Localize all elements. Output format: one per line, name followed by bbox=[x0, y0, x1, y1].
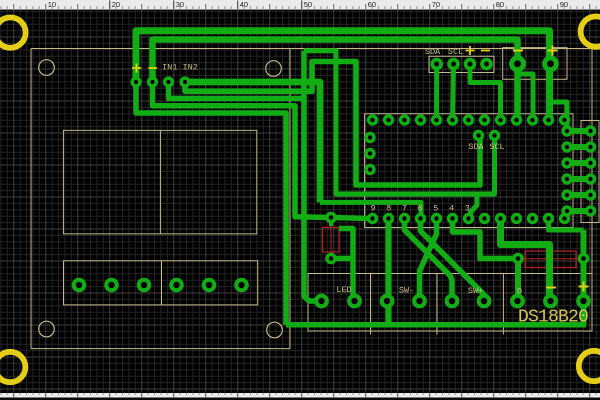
svg-text:DS18B20: DS18B20 bbox=[518, 308, 588, 328]
svg-text:7: 7 bbox=[402, 204, 407, 214]
svg-text:60: 60 bbox=[368, 0, 376, 9]
svg-text:20: 20 bbox=[112, 0, 120, 9]
svg-text:3: 3 bbox=[465, 204, 470, 214]
svg-text:SCL: SCL bbox=[489, 142, 504, 152]
svg-text:SDA: SDA bbox=[468, 142, 484, 152]
svg-text:8: 8 bbox=[386, 204, 391, 214]
svg-text:SW-: SW- bbox=[399, 286, 414, 296]
svg-text:10: 10 bbox=[48, 0, 56, 9]
svg-text:70: 70 bbox=[432, 0, 440, 9]
svg-text:IN1 IN2: IN1 IN2 bbox=[162, 63, 198, 73]
svg-text:D: D bbox=[517, 287, 522, 297]
svg-text:9: 9 bbox=[370, 204, 375, 214]
svg-text:SCL: SCL bbox=[448, 47, 463, 57]
svg-text:50: 50 bbox=[304, 0, 312, 9]
svg-text:4: 4 bbox=[449, 204, 454, 214]
svg-text:30: 30 bbox=[176, 0, 184, 9]
svg-text:90: 90 bbox=[560, 0, 568, 9]
svg-text:SDA: SDA bbox=[425, 47, 441, 57]
svg-text:5: 5 bbox=[433, 204, 438, 214]
svg-text:6: 6 bbox=[418, 204, 423, 214]
svg-text:LED: LED bbox=[336, 285, 351, 295]
svg-text:80: 80 bbox=[496, 0, 504, 9]
svg-text:SW+: SW+ bbox=[468, 286, 483, 296]
svg-text:40: 40 bbox=[240, 0, 248, 9]
